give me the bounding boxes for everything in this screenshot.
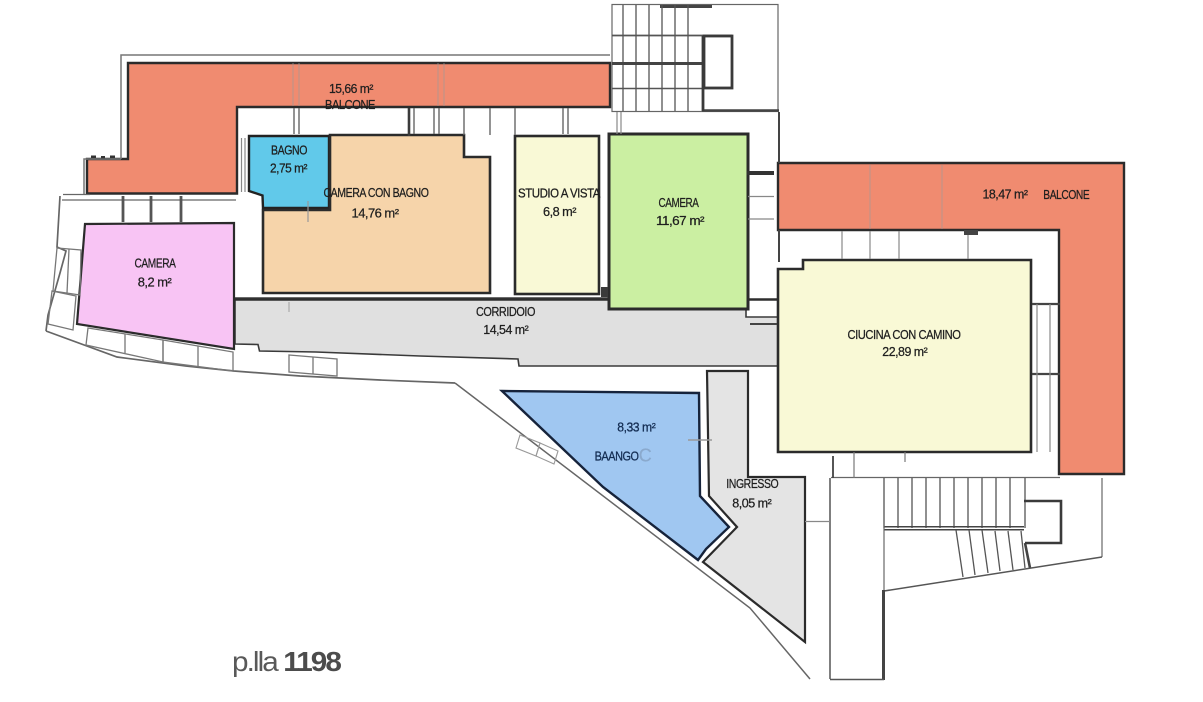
svg-text:INGRESSO: INGRESSO: [726, 477, 779, 491]
svg-text:22,89 m²: 22,89 m²: [882, 345, 927, 359]
svg-text:CIUCINA CON CAMINO: CIUCINA CON CAMINO: [848, 328, 962, 342]
svg-text:CAMERA CON BAGNO: CAMERA CON BAGNO: [324, 186, 430, 200]
svg-text:18,47 m²: 18,47 m²: [983, 188, 1028, 202]
svg-text:8,33 m²: 8,33 m²: [617, 421, 655, 435]
svg-text:C: C: [639, 446, 652, 466]
svg-text:CAMERA: CAMERA: [135, 257, 177, 271]
svg-text:STUDIO A VISTA: STUDIO A VISTA: [518, 187, 601, 201]
svg-text:CAMERA: CAMERA: [659, 196, 700, 210]
svg-text:BAGNO: BAGNO: [271, 144, 308, 158]
svg-text:BALCONE: BALCONE: [325, 98, 375, 112]
svg-text:8,2 m²: 8,2 m²: [138, 276, 172, 290]
svg-text:2,75 m²: 2,75 m²: [270, 162, 307, 176]
svg-text:CORRIDOIO: CORRIDOIO: [476, 305, 536, 319]
svg-text:6,8 m²: 6,8 m²: [543, 205, 576, 219]
svg-text:14,76 m²: 14,76 m²: [352, 207, 399, 221]
svg-text:15,66 m²: 15,66 m²: [329, 82, 373, 96]
svg-text:14,54 m²: 14,54 m²: [483, 323, 528, 337]
svg-text:BAANGO: BAANGO: [595, 450, 640, 464]
svg-text:p.lla 1198: p.lla 1198: [232, 646, 341, 677]
svg-text:11,67 m²: 11,67 m²: [656, 214, 704, 228]
svg-text:8,05 m²: 8,05 m²: [732, 497, 771, 511]
svg-text:BALCONE: BALCONE: [1043, 188, 1089, 202]
